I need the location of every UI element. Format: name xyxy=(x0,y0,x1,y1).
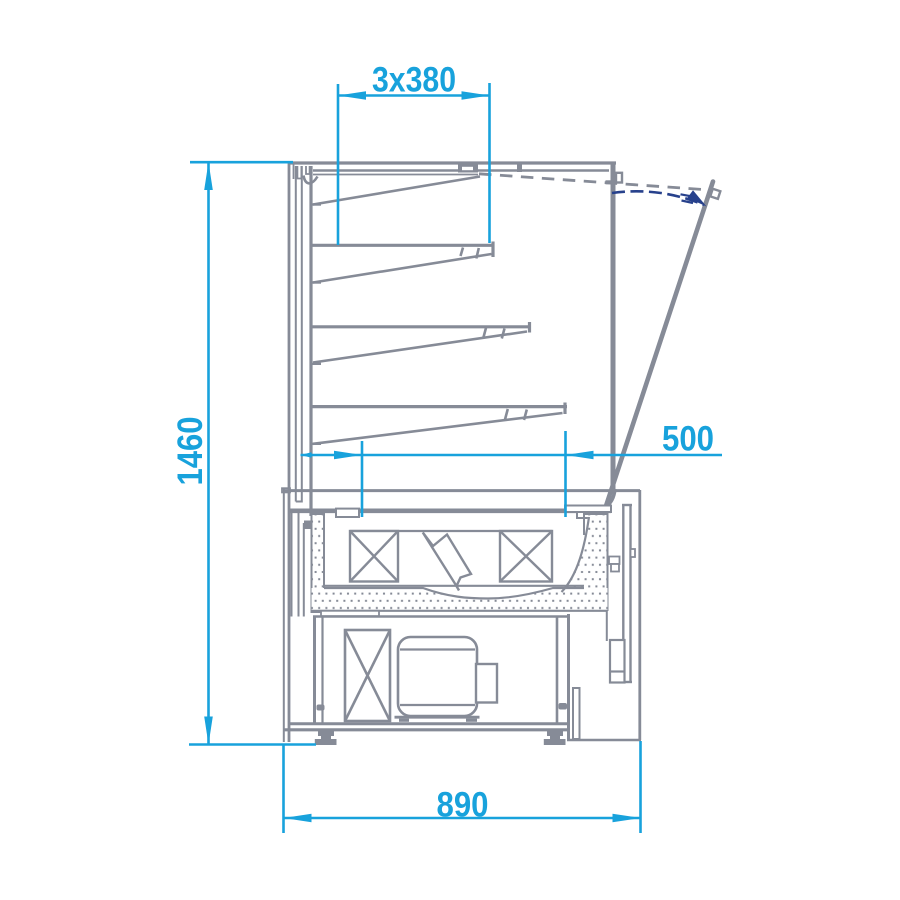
svg-text:890: 890 xyxy=(437,785,489,825)
svg-text:500: 500 xyxy=(662,419,714,459)
svg-text:3x380: 3x380 xyxy=(372,60,456,100)
svg-text:1460: 1460 xyxy=(170,417,210,486)
